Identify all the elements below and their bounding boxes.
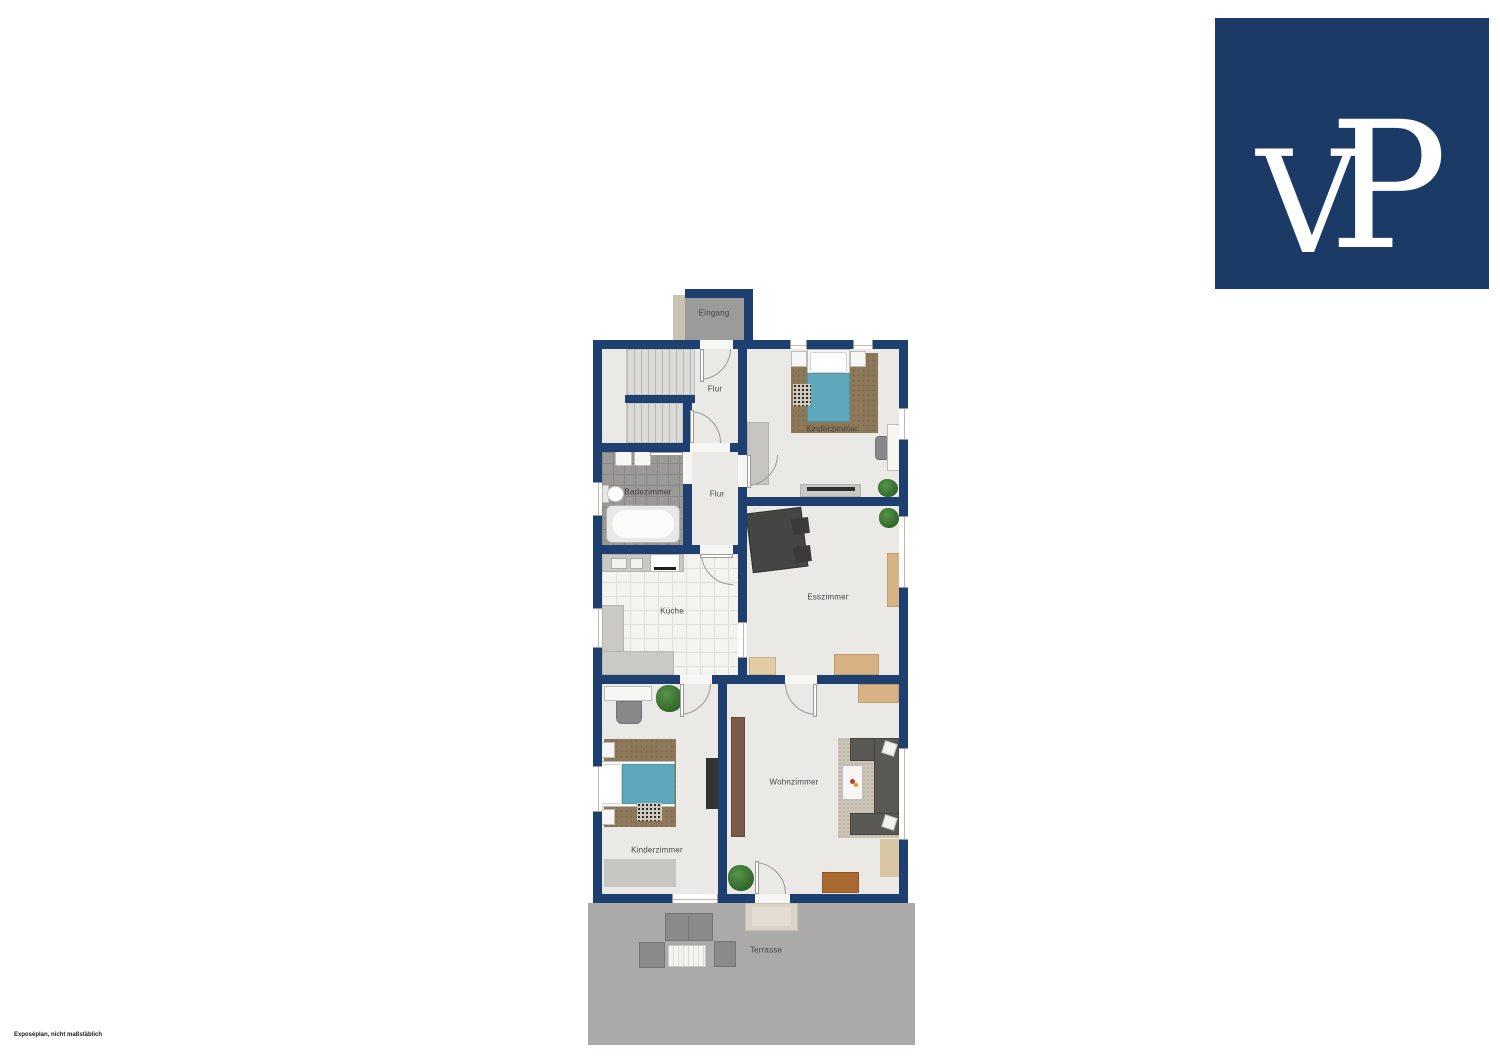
coffee-table [842,765,863,800]
door-threshold [785,675,817,684]
room-label-kueche: Küche [660,607,684,616]
dining-chair [793,545,812,563]
terrace-sofa-seam [688,916,689,940]
wall [593,340,602,482]
door-leaf [680,684,684,717]
wall [685,289,753,298]
stove-front [654,567,676,570]
nightstand [791,351,807,367]
wall [738,487,747,622]
nightstand [850,351,866,367]
terrace-table [668,945,706,967]
toilet [607,486,624,502]
wall [899,340,908,408]
door-leaf [700,554,733,558]
door-leaf [700,349,704,382]
room-label-kinderzimmer-upper: Kinderzimmer [806,425,858,434]
door-threshold [738,455,747,487]
door-arc [747,455,780,488]
door-threshold [680,675,712,684]
door-leaf [650,452,683,456]
staircase-lower-flight [626,403,683,443]
window [593,766,602,812]
room-label-flur-lower: Flur [710,490,725,499]
terrace-chair [714,941,736,967]
window [790,340,807,349]
desk [604,686,652,701]
pass-through-window [738,622,747,658]
window [899,408,908,440]
kitchen-sink [611,558,627,569]
wall [593,812,602,903]
door-threshold [700,545,733,554]
door-arc [690,410,723,443]
kitchen-counter-l [602,651,674,675]
wall [683,484,692,545]
window [593,608,602,648]
window [672,894,718,903]
window [853,340,873,349]
wall [738,349,747,455]
door-threshold [755,894,790,903]
bed-blanket [622,764,675,804]
bed-pillow [601,764,622,804]
door-arc [755,861,788,894]
door-arc [650,452,683,485]
door-threshold [683,452,692,484]
tv-sideboard [800,484,861,497]
room-label-wohnzimmer: Wohnzimmer [770,778,819,787]
plant [878,479,898,497]
door-arc [700,349,733,382]
terrace-sofa [665,913,713,941]
room-label-flur-upper: Flur [708,385,723,394]
wall [817,675,908,684]
door-threshold [700,340,733,349]
staircase-upper-flight [626,349,695,395]
wall [899,588,908,748]
door-arc [700,554,733,587]
beige-rug [880,839,899,877]
wall [807,340,853,349]
wall [593,443,690,452]
bathroom-sink [634,451,651,466]
wall [593,516,602,608]
floorplan-page: V P Terrasse Eingang [0,0,1500,1060]
wall [718,894,755,903]
tv [807,487,855,491]
plant [656,685,683,712]
side-table [822,872,859,893]
wall [733,340,790,349]
dining-table [746,507,809,573]
room-label-badezimmer: Badezimmer [625,488,672,497]
window [593,482,602,516]
floor-plan: Terrasse Eingang Kinderzimmer [588,287,915,1045]
company-logo: V P [1215,18,1489,289]
tv [706,758,718,809]
room-label-kinderzimmer-lower: Kinderzimmer [631,846,683,855]
door-arc [680,684,713,717]
plant [879,508,899,528]
bench [749,657,776,675]
extractor-hood [655,556,675,567]
gray-rug [604,859,676,887]
logo-letter-p: P [1329,99,1447,275]
wall [593,894,672,903]
room-terrasse: Terrasse [588,903,915,1045]
door-mat-inner [752,907,791,926]
bed-pillow [810,352,847,373]
bathroom-sink [615,451,632,466]
tv-sideboard [731,717,745,837]
wall [593,648,602,766]
door-threshold [690,443,730,452]
wall [738,658,747,675]
wall [625,395,695,403]
room-label-esszimmer: Esszimmer [807,593,848,602]
sideboard [858,684,899,703]
door-leaf [755,861,759,894]
door-leaf [747,455,751,488]
door-arc [784,684,817,717]
wall [718,684,727,894]
desk-chair [616,701,642,724]
kitchen-sink [630,558,643,569]
door-mat [745,903,798,931]
wall [593,545,700,554]
wall [790,894,908,903]
window [899,748,908,840]
plant [728,865,754,891]
door-leaf [813,684,817,717]
door-leaf [690,410,694,443]
room-label-terrasse: Terrasse [750,946,782,955]
bed-blanket [807,373,850,422]
stove [650,554,680,572]
table-decor [854,783,858,787]
disclaimer-text: Exposéplan, nicht maßstäblich [14,1032,102,1038]
bathtub [606,505,680,543]
bench [834,654,879,675]
terrace-chair [639,942,665,968]
window [899,516,908,588]
wall [593,675,680,684]
wall [738,497,908,506]
dotted-rug [637,803,662,821]
dotted-rug [793,384,811,406]
wall [593,340,700,349]
room-label-eingang: Eingang [699,309,730,318]
bathtub-basin [612,510,674,538]
wall [712,675,785,684]
dining-chair [791,517,810,535]
